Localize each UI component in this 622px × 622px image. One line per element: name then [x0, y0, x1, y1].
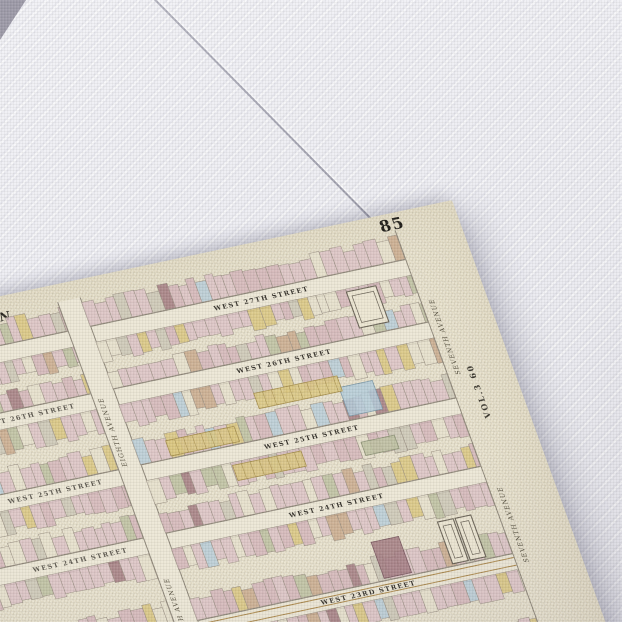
photo-stage: 85 VOL.3 60 N WEST 27TH STREETWEST 26TH …	[0, 0, 622, 622]
